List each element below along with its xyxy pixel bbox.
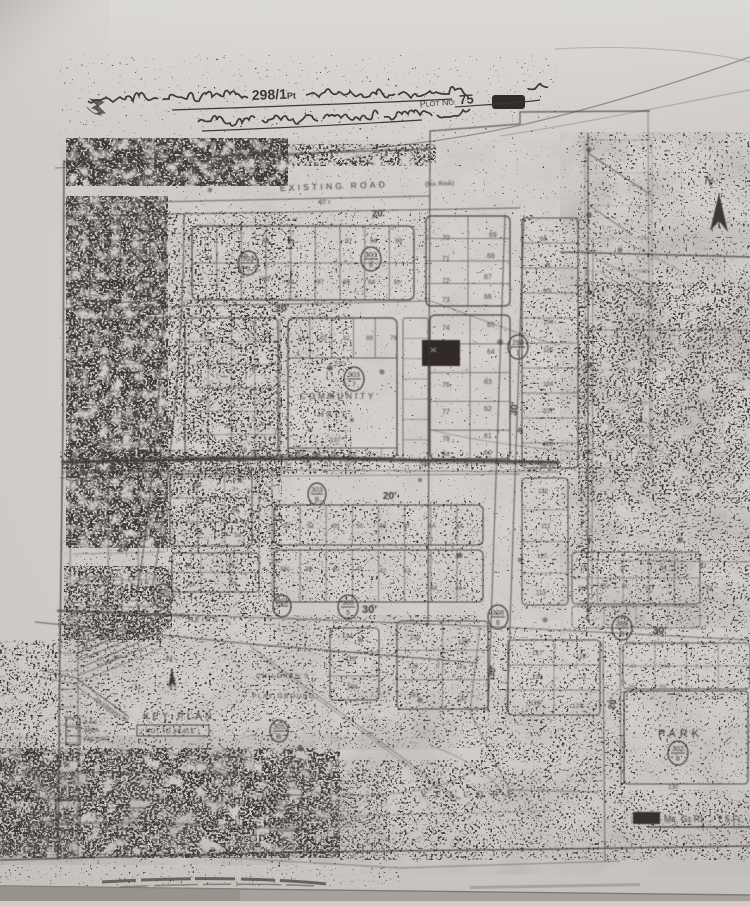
svg-text:130: 130	[668, 784, 679, 791]
svg-text:306: 306	[616, 621, 628, 628]
svg-text:137: 137	[330, 437, 341, 444]
svg-text:5a: 5a	[230, 580, 237, 587]
svg-text:30′: 30′	[362, 604, 377, 616]
svg-text:14: 14	[628, 684, 635, 690]
svg-text:5a: 5a	[232, 507, 239, 514]
svg-text:44: 44	[456, 523, 464, 530]
svg-text:52: 52	[307, 523, 315, 530]
svg-text:51: 51	[283, 523, 291, 530]
svg-text:50: 50	[356, 523, 364, 530]
svg-text:139: 139	[345, 656, 356, 663]
svg-text:Mᴇ. Gɪ Rɪ → 7 5 Fʟ.: Mᴇ. Gɪ Rɪ → 7 5 Fʟ.	[664, 814, 744, 824]
svg-text:B: B	[620, 631, 625, 638]
svg-text:3a: 3a	[188, 581, 195, 588]
svg-text:5+: 5+	[285, 461, 292, 468]
svg-text:151: 151	[409, 692, 420, 699]
svg-text:78: 78	[442, 436, 450, 443]
svg-text:110: 110	[538, 488, 548, 495]
svg-text:40′ r: 40′ r	[318, 199, 331, 206]
svg-text:68: 68	[487, 253, 495, 260]
svg-text:48: 48	[379, 523, 387, 530]
svg-text:20′: 20′	[117, 543, 132, 555]
svg-text:12: 12	[226, 423, 233, 430]
svg-text:122: 122	[625, 641, 635, 647]
svg-text:2: 2	[436, 663, 440, 670]
svg-text:10L: 10L	[638, 368, 648, 374]
svg-text:6a: 6a	[442, 451, 450, 458]
svg-text:63: 63	[484, 379, 492, 386]
svg-text:300: 300	[274, 800, 283, 806]
svg-text:HALL: HALL	[318, 410, 350, 419]
svg-text:108: 108	[543, 441, 554, 448]
svg-text:44: 44	[455, 585, 463, 592]
svg-text:65: 65	[487, 322, 495, 329]
svg-text:20′: 20′	[371, 208, 386, 220]
svg-text:COMMUNITY: COMMUNITY	[300, 392, 376, 401]
svg-text:303: 303	[242, 256, 254, 263]
svg-text:122: 122	[408, 663, 419, 670]
svg-text:105: 105	[543, 347, 554, 354]
svg-text:73: 73	[442, 297, 450, 304]
svg-text:V E L L O R E: V E L L O R E	[421, 790, 516, 799]
svg-text:84: 84	[205, 255, 213, 262]
svg-text:377: 377	[345, 461, 356, 468]
svg-text:79: 79	[390, 335, 397, 342]
svg-text:60: 60	[484, 450, 492, 457]
svg-text:5a: 5a	[305, 461, 312, 468]
svg-text:89: 89	[366, 335, 373, 342]
svg-text:30′: 30′	[486, 665, 498, 679]
svg-text:5: 5	[465, 463, 469, 470]
svg-text:84: 84	[368, 279, 376, 286]
svg-text:9+: 9+	[287, 238, 295, 245]
svg-text:5=: 5=	[368, 451, 375, 458]
svg-text:103: 103	[638, 401, 648, 407]
svg-text:84: 84	[660, 566, 667, 572]
svg-text:4A: 4A	[428, 523, 437, 530]
svg-text:151: 151	[680, 641, 690, 647]
svg-text:57: 57	[325, 461, 332, 468]
svg-text:5a: 5a	[234, 532, 241, 539]
svg-text:30: 30	[246, 140, 257, 151]
svg-text:305: 305	[273, 724, 285, 731]
svg-text:87: 87	[317, 279, 325, 286]
svg-text:43: 43	[403, 568, 411, 575]
svg-text:B: B	[277, 734, 282, 741]
svg-text:2: 2	[695, 664, 698, 670]
svg-text:83: 83	[298, 336, 305, 343]
svg-text:( NOT TO SCALE ): ( NOT TO SCALE )	[141, 729, 200, 735]
svg-text:70: 70	[442, 235, 450, 242]
svg-text:66: 66	[540, 236, 547, 243]
svg-text:10L: 10L	[543, 288, 554, 295]
svg-text:8+: 8+	[394, 279, 402, 286]
svg-text:30′: 30′	[652, 625, 667, 637]
svg-text:127: 127	[532, 650, 543, 657]
svg-text:17: 17	[190, 509, 197, 516]
svg-text:117: 117	[537, 553, 547, 560]
svg-text:84: 84	[287, 279, 295, 286]
svg-text:298: 298	[512, 340, 524, 347]
svg-text:9: 9	[676, 756, 680, 763]
svg-text:114: 114	[578, 586, 588, 592]
svg-text:82: 82	[320, 335, 327, 342]
svg-text:136: 136	[532, 674, 543, 681]
svg-text:124: 124	[572, 703, 583, 710]
svg-text:40: 40	[332, 566, 340, 573]
svg-text:10c: 10c	[640, 302, 649, 308]
svg-text:125: 125	[530, 700, 541, 707]
svg-text:61: 61	[484, 433, 492, 440]
svg-text:130: 130	[456, 696, 467, 703]
svg-text:108: 108	[638, 269, 648, 275]
svg-text:2-4-6: 2-4-6	[84, 720, 97, 726]
svg-text:3a: 3a	[195, 529, 202, 536]
svg-text:85: 85	[600, 584, 607, 590]
svg-text:97: 97	[345, 238, 353, 245]
svg-text:28: 28	[250, 365, 257, 372]
svg-text:67: 67	[484, 274, 492, 281]
svg-text:20′: 20′	[606, 697, 618, 711]
svg-text:15: 15	[200, 333, 207, 340]
svg-text:B: B	[315, 497, 320, 504]
svg-text:10: 10	[194, 482, 201, 489]
svg-text:10A: 10A	[638, 434, 648, 440]
svg-text:104: 104	[543, 319, 554, 326]
svg-text:94: 94	[262, 238, 270, 245]
svg-text:4L: 4L	[545, 262, 552, 269]
svg-text:104: 104	[543, 381, 554, 388]
svg-text:50: 50	[250, 449, 257, 456]
svg-text:6: 6	[496, 620, 500, 627]
svg-text:7: 7	[352, 382, 356, 389]
svg-text:$7: $7	[700, 564, 707, 570]
svg-text:20′: 20′	[275, 303, 290, 315]
svg-text:74: 74	[442, 325, 450, 332]
svg-text:KEY PLAN: KEY PLAN	[143, 711, 215, 721]
svg-text:47: 47	[403, 523, 411, 530]
svg-text:HEIRS: HEIRS	[188, 617, 219, 624]
svg-text:N: N	[166, 654, 173, 664]
svg-text:35: 35	[185, 563, 192, 570]
svg-text:303: 303	[348, 372, 360, 379]
svg-text:303: 303	[311, 487, 323, 494]
svg-text:(2: (2	[620, 566, 626, 572]
svg-text:72: 72	[442, 278, 450, 285]
svg-text:303: 303	[365, 252, 377, 259]
svg-text:62: 62	[484, 406, 492, 413]
svg-text:128: 128	[458, 639, 469, 646]
svg-text:11: 11	[134, 684, 141, 691]
svg-text:44: 44	[430, 585, 438, 592]
svg-text:41: 41	[356, 566, 364, 573]
svg-text:30: 30	[200, 397, 207, 404]
svg-text:AREA: AREA	[84, 728, 99, 734]
svg-text:6a: 6a	[540, 463, 547, 470]
svg-text:86: 86	[343, 279, 351, 286]
svg-text:S1: S1	[332, 523, 340, 530]
svg-text:69: 69	[489, 232, 497, 239]
svg-text:303: 303	[276, 599, 288, 606]
svg-text:38(: 38(	[280, 566, 290, 573]
svg-text:122: 122	[576, 653, 587, 660]
svg-text:133: 133	[410, 634, 421, 641]
svg-text:64: 64	[487, 349, 495, 356]
svg-text:96: 96	[370, 238, 378, 245]
svg-text:5: 5	[346, 610, 350, 617]
svg-text:107: 107	[543, 408, 554, 415]
svg-text:43: 43	[630, 664, 636, 670]
svg-text:77: 77	[442, 409, 450, 416]
svg-text:PLAY GROUND: PLAY GROUND	[252, 693, 315, 700]
svg-text:57: 57	[228, 563, 235, 570]
svg-text:66: 66	[484, 294, 492, 301]
svg-text:156: 156	[347, 684, 358, 691]
svg-text:1212: 1212	[650, 641, 663, 647]
svg-text:3+: 3+	[232, 486, 239, 493]
svg-text:17C: 17C	[334, 361, 346, 368]
svg-text:8a: 8a	[660, 684, 667, 690]
svg-text:39: 39	[305, 566, 313, 573]
svg-text:20′: 20′	[383, 491, 397, 502]
svg-text:42: 42	[379, 568, 387, 575]
svg-text:24: 24	[706, 586, 713, 592]
svg-text:-3: -3	[580, 674, 586, 681]
svg-text:8L: 8L	[622, 584, 629, 590]
svg-text:85: 85	[262, 276, 270, 283]
svg-text:PARK: PARK	[658, 728, 703, 740]
svg-text:134: 134	[342, 633, 353, 640]
svg-text:58: 58	[240, 447, 247, 454]
svg-text:104: 104	[638, 335, 648, 341]
svg-text:Lɪɴᴇ: Lɪɴᴇ	[274, 808, 284, 814]
svg-text:1: 1	[161, 599, 165, 606]
svg-text:17a: 17a	[456, 664, 467, 671]
svg-text:71: 71	[442, 256, 450, 263]
svg-text:14: 14	[258, 445, 265, 452]
svg-text:5: 5	[246, 266, 250, 273]
svg-text:FACTORY: FACTORY	[84, 737, 110, 743]
svg-text:302: 302	[672, 746, 684, 753]
svg-text:306: 306	[342, 600, 354, 607]
svg-text:76: 76	[442, 382, 450, 389]
svg-text:104: 104	[660, 664, 670, 670]
svg-text:113: 113	[536, 590, 546, 597]
svg-text:117: 117	[645, 586, 655, 592]
svg-text:111: 111	[541, 523, 551, 530]
svg-text:6: 6	[369, 262, 373, 269]
svg-text:308: 308	[492, 610, 504, 617]
svg-text:81: 81	[343, 335, 350, 342]
svg-text:16): 16)	[640, 236, 648, 242]
svg-text:99: 99	[395, 238, 403, 245]
svg-text:14: 14	[580, 566, 587, 572]
svg-text:306: 306	[157, 589, 169, 596]
svg-text:23: 23	[262, 333, 269, 340]
